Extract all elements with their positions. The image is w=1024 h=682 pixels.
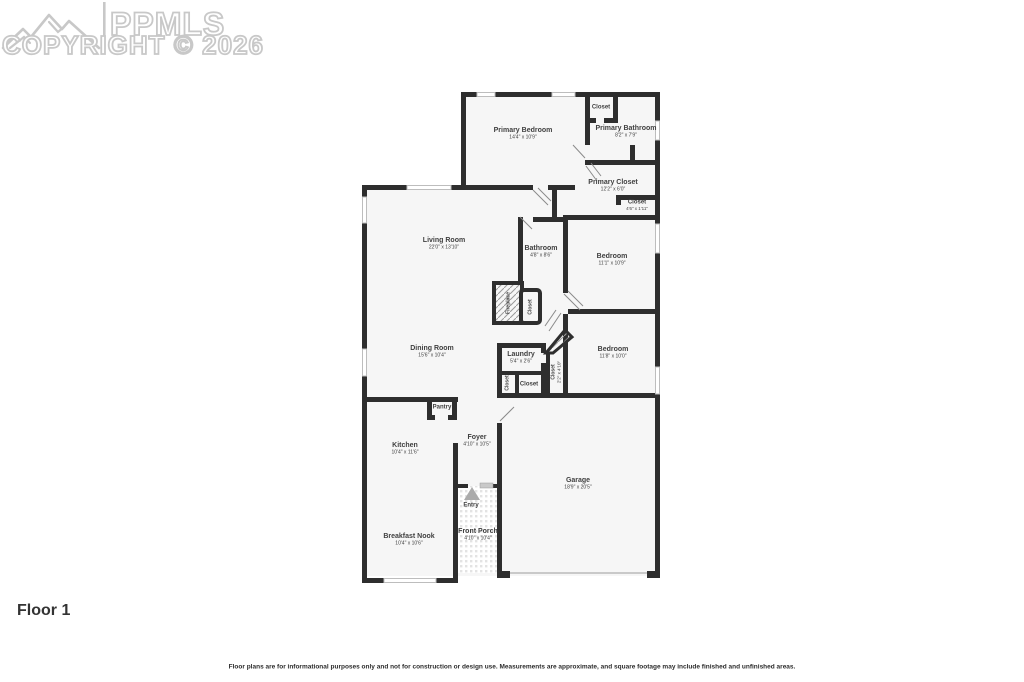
- room-label-hall-closet-small: Closet 4'6" x 1'11": [626, 198, 648, 212]
- room-label-bedroom-lower: Bedroom 11'8" x 10'0": [598, 344, 629, 360]
- room-dims: 10'4" x 10'6": [383, 540, 434, 547]
- room-name: Fireplace: [505, 292, 512, 314]
- room-dims: 11'8" x 10'0": [598, 353, 629, 360]
- room-dims: 4'10" x 10'5": [463, 441, 490, 448]
- disclaimer-text: Floor plans are for informational purpos…: [229, 662, 796, 670]
- room-dims: 10'4" x 11'6": [391, 449, 418, 456]
- room-label-fireplace: Fireplace: [505, 292, 512, 314]
- room-label-primary-bathroom: Primary Bathroom 8'2" x 7'9": [595, 123, 656, 139]
- room-name: Closet: [626, 198, 648, 206]
- room-name: Primary Bedroom: [494, 125, 553, 134]
- room-label-kitchen: Kitchen 10'4" x 11'6": [391, 440, 418, 456]
- room-dims: 18'9" x 20'5": [564, 484, 591, 491]
- floor-title: Floor 1: [17, 602, 70, 620]
- room-label-living-room: Living Room 22'0" x 13'10": [423, 235, 465, 251]
- room-name: Living Room: [423, 235, 465, 244]
- room-dims: 4'8" x 8'6": [524, 252, 557, 259]
- room-dims: 22'0" x 13'10": [423, 244, 465, 251]
- room-label-pantry: Pantry: [433, 403, 452, 411]
- room-dims: 8'2" x 7'9": [595, 132, 656, 139]
- room-name: Foyer: [463, 432, 490, 441]
- room-label-breakfast-nook: Breakfast Nook 10'4" x 10'6": [383, 531, 434, 547]
- room-dims: 14'4" x 10'9": [494, 134, 553, 141]
- room-name: Primary Bathroom: [595, 123, 656, 132]
- room-label-laundry-closet-left: Closet: [504, 375, 511, 390]
- room-name: Closet: [504, 375, 511, 390]
- room-dims: 5'4" x 2'6": [507, 358, 535, 365]
- room-label-laundry-closet: Closet: [520, 380, 538, 388]
- room-label-bedroom-upper: Bedroom 11'1" x 10'9": [597, 251, 628, 267]
- room-dims: 11'1" x 10'9": [597, 260, 628, 267]
- room-name: Breakfast Nook: [383, 531, 434, 540]
- room-dims: 4'10" x 10'4": [458, 535, 498, 542]
- room-name: Closet: [592, 103, 610, 111]
- room-label-front-porch: Front Porch 4'10" x 10'4": [458, 526, 498, 542]
- room-label-dining-room: Dining Room 15'6" x 10'4": [410, 343, 454, 359]
- room-name: Entry: [463, 501, 478, 509]
- room-name: Bathroom: [524, 243, 557, 252]
- room-name: Front Porch: [458, 526, 498, 535]
- room-name: Pantry: [433, 403, 452, 411]
- room-label-primary-bedroom: Primary Bedroom 14'4" x 10'9": [494, 125, 553, 141]
- room-label-bathroom: Bathroom 4'8" x 8'6": [524, 243, 557, 259]
- room-dims: 2'2" x 4'10": [556, 361, 562, 383]
- room-name: Closet: [520, 380, 538, 388]
- room-dims: 12'2" x 6'0": [588, 186, 637, 193]
- room-name: Bedroom: [597, 251, 628, 260]
- room-label-primary-closet: Primary Closet 12'2" x 6'0": [588, 177, 637, 193]
- room-name: Laundry: [507, 349, 535, 358]
- room-label-entry: Entry: [463, 501, 478, 509]
- room-name: Dining Room: [410, 343, 454, 352]
- room-label-laundry: Laundry 5'4" x 2'6": [507, 349, 535, 365]
- room-name: Kitchen: [391, 440, 418, 449]
- room-name: Garage: [564, 475, 591, 484]
- room-name: Primary Closet: [588, 177, 637, 186]
- room-label-garage: Garage 18'9" x 20'5": [564, 475, 591, 491]
- room-name: Closet: [527, 299, 534, 314]
- entry-threshold: [480, 483, 493, 488]
- room-dims: 4'6" x 1'11": [626, 206, 648, 212]
- floor-plan: [0, 0, 1024, 682]
- room-label-hall-closet: Closet 2'2" x 4'10": [550, 361, 562, 383]
- room-label-foyer: Foyer 4'10" x 10'5": [463, 432, 490, 448]
- room-name: Bedroom: [598, 344, 629, 353]
- room-label-fireplace-closet: Closet: [527, 299, 534, 314]
- room-label-primary-closet-top: Closet: [592, 103, 610, 111]
- room-dims: 15'6" x 10'4": [410, 352, 454, 359]
